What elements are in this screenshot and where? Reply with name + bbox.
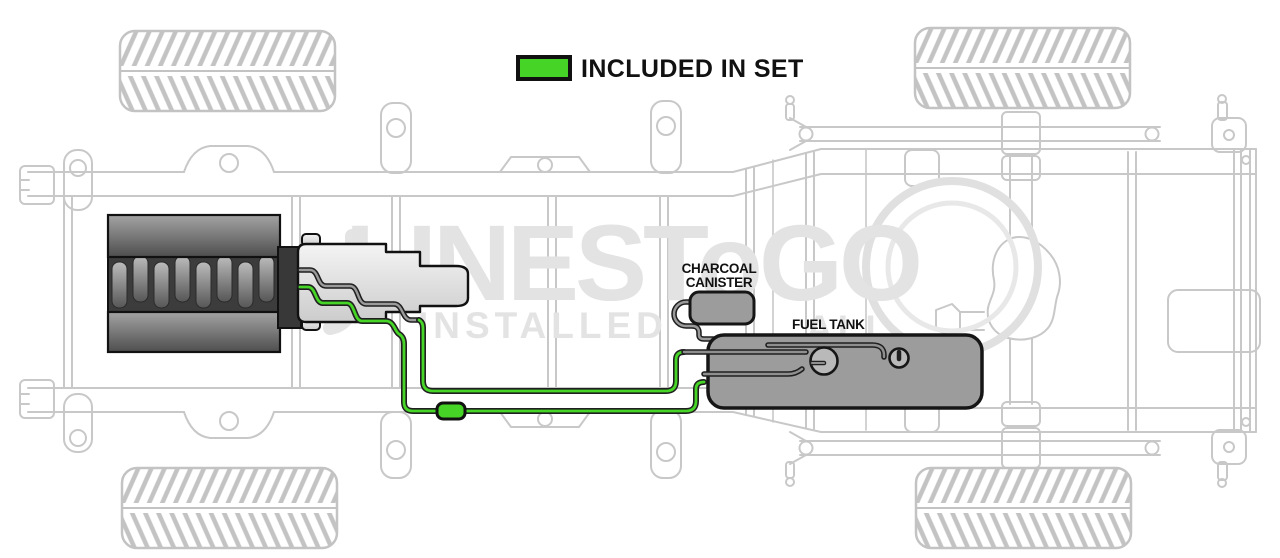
front-left-tire (120, 31, 335, 111)
valve-cover-right (108, 312, 280, 352)
rear-crossmember-plate (1168, 290, 1260, 352)
charcoal-canister (690, 292, 754, 324)
legend-label: INCLUDED IN SET (581, 55, 804, 83)
charcoal-canister-label-line1: CHARCOAL (682, 261, 757, 276)
watermark-word: INSTALLED (418, 305, 668, 346)
body-mount-tab (381, 412, 411, 478)
front-crossmember-arch-bottom (184, 412, 274, 438)
body-mount-tab (651, 101, 681, 173)
charcoal-canister-label-line2: CANISTER (686, 275, 753, 290)
engine (108, 215, 301, 352)
legend-green-swatch-icon (518, 57, 570, 79)
fuel-tank-group (684, 335, 982, 408)
tow-bracket-bottom (64, 394, 92, 452)
fuel-tank-label: FUEL TANK (792, 317, 865, 332)
valve-cover-left (108, 215, 280, 257)
rear-right-bottom-tire (916, 468, 1131, 548)
rear-right-top-tire (915, 28, 1130, 108)
chassis-diagram: LINESToGO INSTALLED ALL (0, 0, 1280, 558)
front-right-tire (122, 468, 337, 548)
fuel-filter (437, 403, 465, 419)
legend: INCLUDED IN SET (518, 55, 804, 83)
front-crossmember-arch-top (184, 146, 274, 172)
